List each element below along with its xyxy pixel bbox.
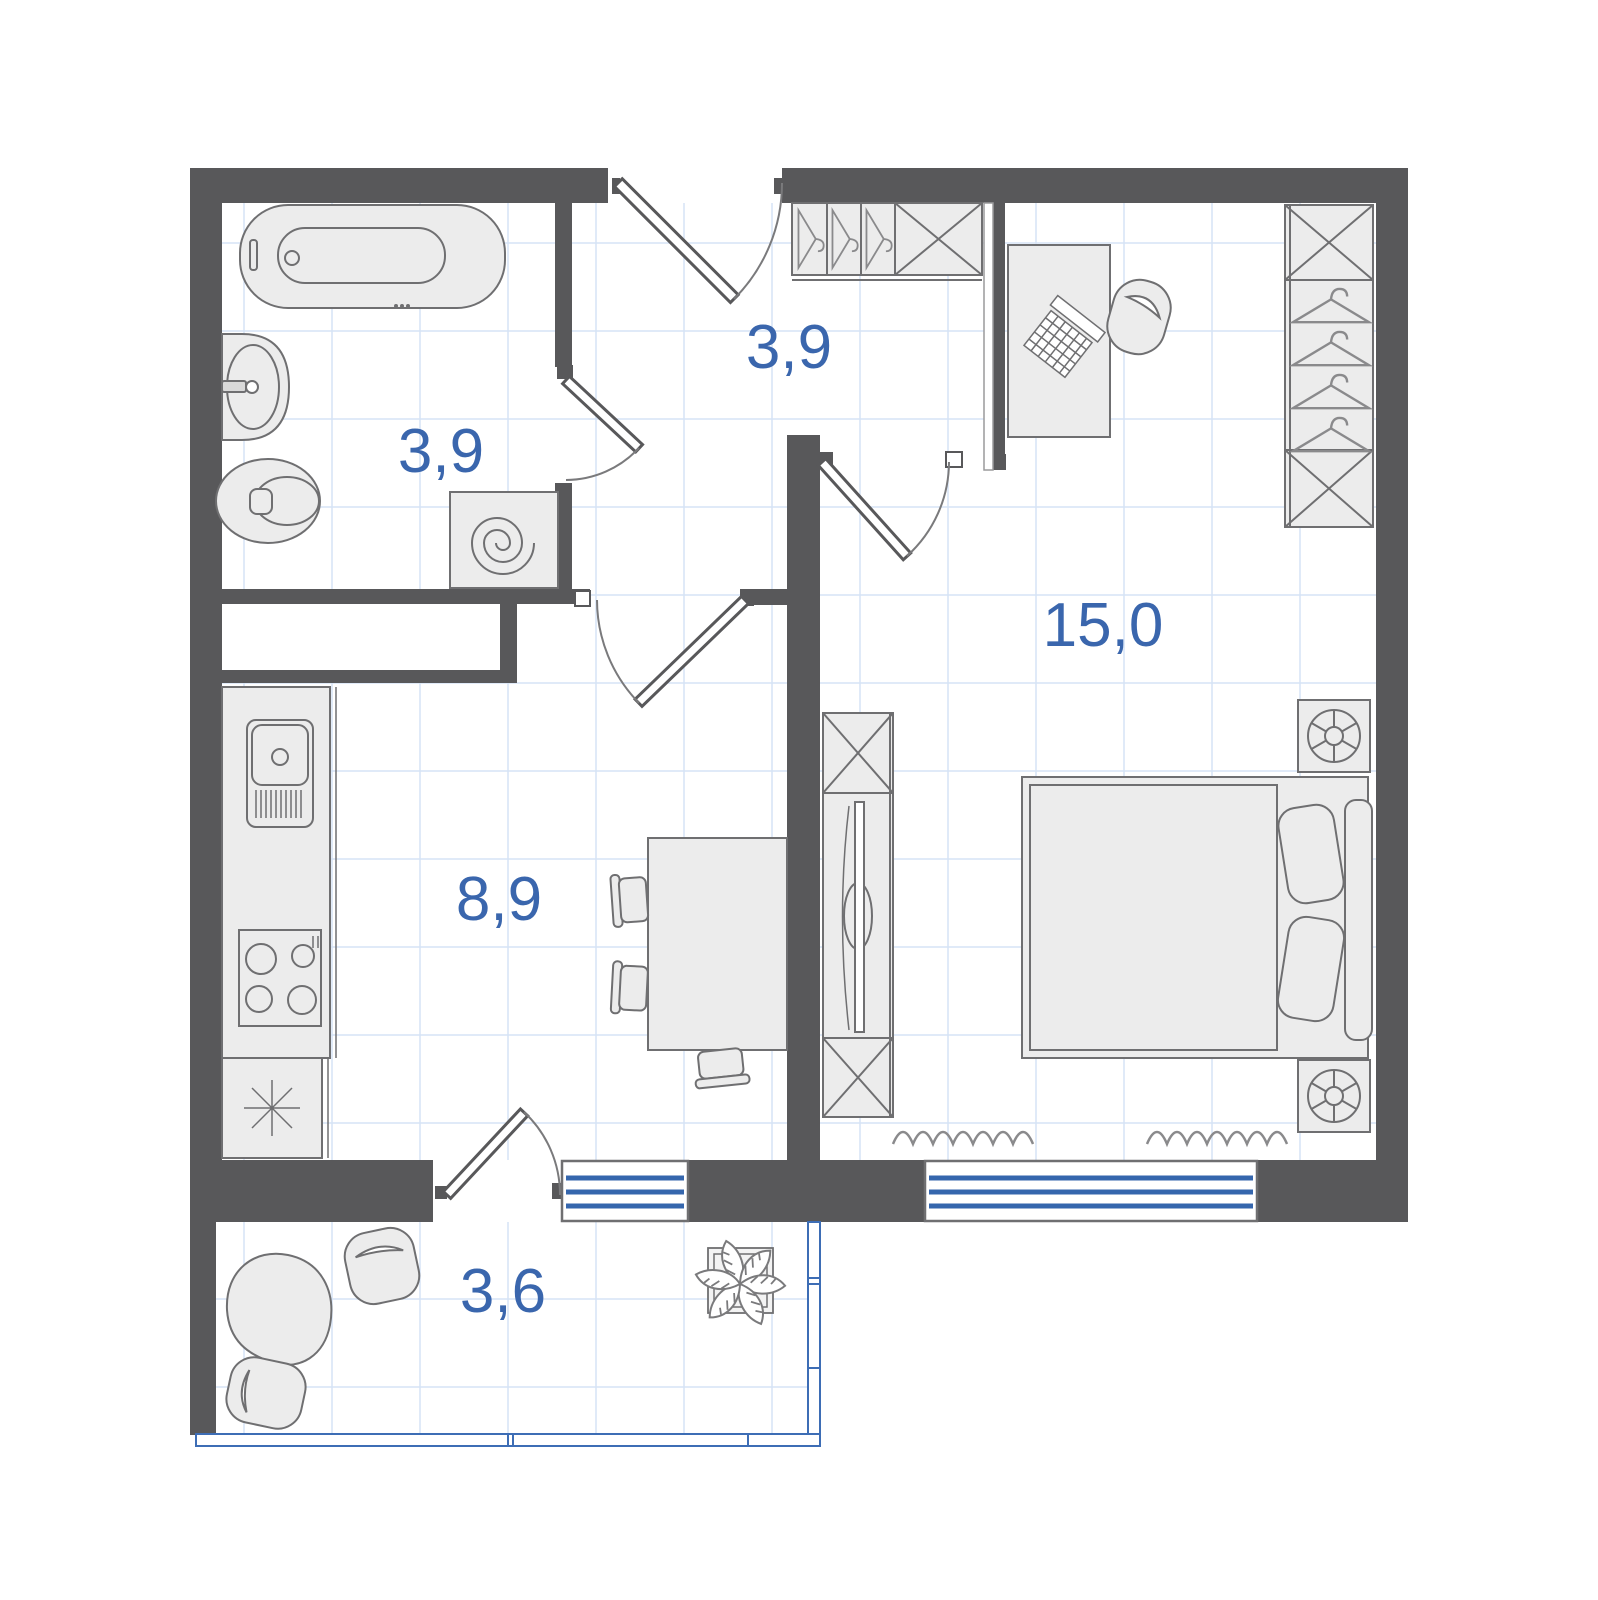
chair-icon — [692, 1047, 749, 1088]
hallway-furniture — [792, 203, 982, 280]
wall-niche-bottom — [213, 670, 517, 683]
wash-basin-icon — [222, 334, 289, 440]
toilet-icon — [216, 459, 320, 543]
bedroom-window — [925, 1161, 1257, 1221]
duct-niche — [222, 603, 500, 670]
washing-machine-icon — [450, 492, 558, 588]
wall-right — [1376, 168, 1408, 1222]
closet-hangers-icon — [1285, 205, 1373, 527]
kitchen-sink-icon — [247, 720, 313, 827]
wall-balcony-left — [190, 1222, 216, 1435]
nightstand-lamp-icon — [1298, 1060, 1370, 1132]
floor-plan-canvas: 3,9 3,9 15,0 8,9 3,6 — [0, 0, 1598, 1600]
nightstand-lamp-icon — [1298, 700, 1370, 772]
kitchen-window — [562, 1161, 688, 1221]
wall-left — [190, 168, 222, 1222]
headboard — [1345, 800, 1372, 1040]
bathtub-icon — [240, 205, 505, 308]
wardrobe-hangers-icon — [792, 203, 982, 280]
chair-icon — [610, 873, 649, 927]
kitchen-area-label: 8,9 — [456, 865, 542, 934]
wall-bathroom-bottom — [190, 589, 590, 604]
double-bed-icon — [1022, 777, 1372, 1058]
wall-bottom-right — [1257, 1160, 1408, 1222]
wall-bottom-kitchen — [190, 1160, 433, 1222]
stove-icon — [239, 930, 321, 1026]
wall-top-left — [190, 168, 608, 203]
hallway-area-label: 3,9 — [746, 313, 832, 382]
fridge-icon — [222, 1058, 328, 1158]
floor-plan-page: 3,9 3,9 15,0 8,9 3,6 — [0, 0, 1598, 1600]
partition-dark-side — [993, 203, 1005, 470]
desk-icon — [1008, 245, 1110, 437]
wall-central — [787, 435, 820, 1160]
wall-top-right — [782, 168, 1408, 203]
balcony-area-label: 3,6 — [460, 1257, 546, 1326]
wall-bottom-middle — [688, 1160, 925, 1222]
partition-light-side — [984, 203, 993, 470]
dining-table-icon — [648, 838, 787, 1050]
wall-bathroom-right-upper — [555, 203, 572, 367]
bedroom-area-label: 15,0 — [1043, 591, 1164, 660]
snowflake-icon — [244, 1080, 300, 1136]
bathroom-area-label: 3,9 — [398, 417, 484, 486]
tv-stand-icon — [823, 713, 893, 1117]
chair-icon — [611, 961, 649, 1015]
